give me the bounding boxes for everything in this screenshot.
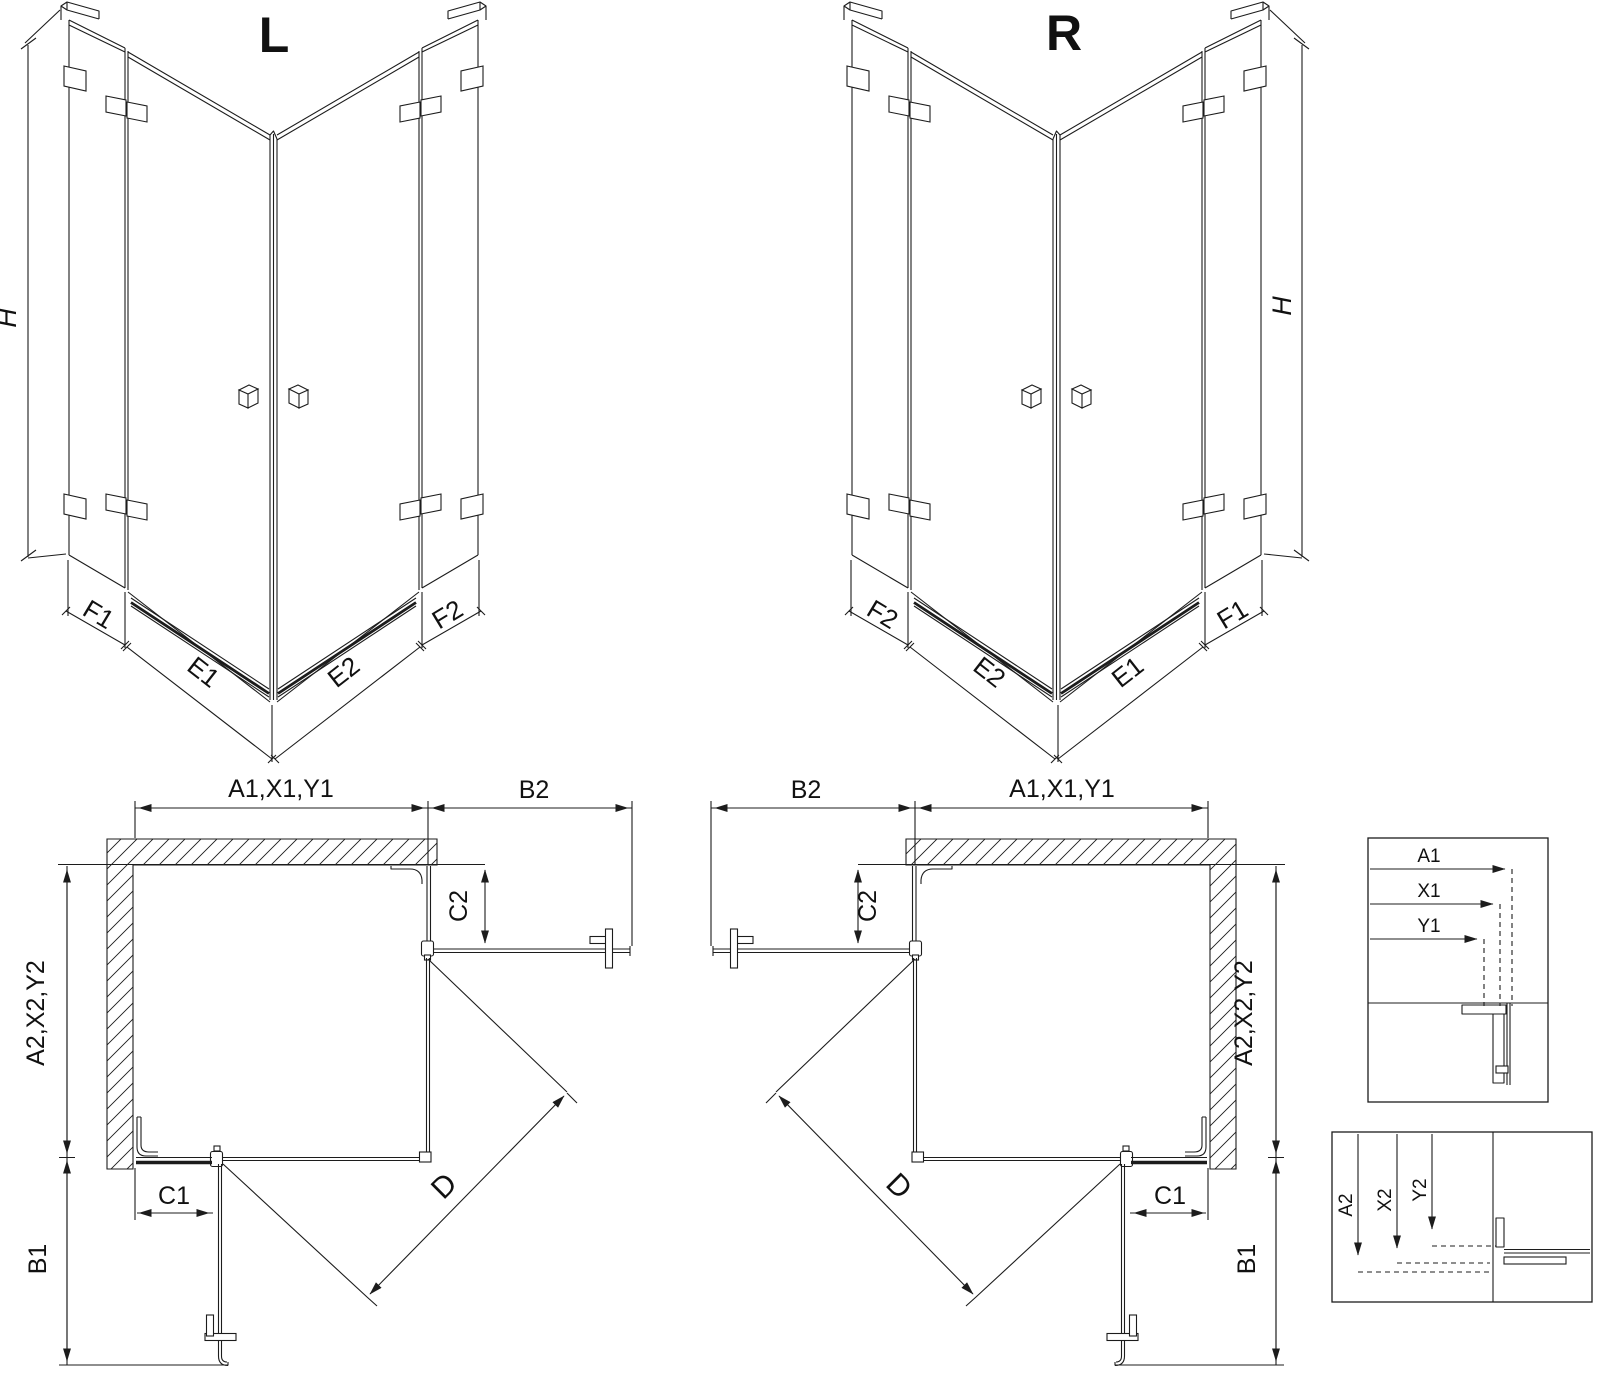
iso-left-f2-label: F2 — [427, 594, 468, 635]
plan-left-d-label: D — [425, 1167, 464, 1206]
plan-left-c2-label: C2 — [445, 890, 473, 922]
detail-diagram-bottom: A2 X2 Y2 — [1332, 1132, 1592, 1302]
plan-right-c1-label: C1 — [1154, 1182, 1186, 1210]
iso-right-title: R — [1046, 5, 1082, 61]
iso-left-e1-label: E1 — [182, 650, 226, 693]
iso-left-f1-label: F1 — [78, 594, 119, 635]
plan-left-depth-label: A2,X2,Y2 — [22, 960, 50, 1066]
plan-right-width-label: A1,X1,Y1 — [1009, 775, 1115, 803]
iso-right-f2-label: F2 — [862, 594, 903, 635]
plan-view-left: A1,X1,Y1 B2 C2 A2,X2,Y2 C1 B1 D — [22, 775, 632, 1366]
iso-view-right: R H F2 E2 E1 F1 — [844, 2, 1309, 763]
detail-bottom-y2-label: Y2 — [1410, 1178, 1431, 1201]
plan-right-b2-label: B2 — [791, 776, 822, 804]
iso-right-e2-label: E2 — [968, 650, 1012, 693]
plan-right-depth-label: A2,X2,Y2 — [1230, 960, 1258, 1066]
iso-right-f1-label: F1 — [1212, 594, 1253, 635]
plan-left-b1-label: B1 — [24, 1244, 52, 1275]
plan-right-b1-label: B1 — [1233, 1244, 1261, 1275]
plan-left-wall — [107, 839, 437, 1169]
detail-top-a1-label: A1 — [1417, 846, 1440, 867]
detail-top-x1-label: X1 — [1417, 881, 1440, 902]
technical-drawing-page: L H F1 E1 E2 F2 R H F2 E2 E1 F1 A1,X1,Y1… — [0, 0, 1600, 1373]
iso-right-e1-label: E1 — [1106, 650, 1150, 693]
detail-diagram-top: A1 X1 Y1 — [1368, 838, 1548, 1102]
plan-left-c1-label: C1 — [158, 1182, 190, 1210]
plan-right-d-label: D — [879, 1167, 918, 1206]
iso-left-height-label: H — [0, 308, 22, 328]
detail-bottom-x2-label: X2 — [1375, 1188, 1396, 1211]
plan-right-wall — [906, 839, 1236, 1169]
iso-left-e2-label: E2 — [322, 650, 366, 693]
detail-bottom-a2-label: A2 — [1336, 1193, 1357, 1216]
iso-left-title: L — [259, 7, 290, 63]
iso-view-left: L H F1 E1 E2 F2 — [0, 2, 486, 763]
plan-view-right: A1,X1,Y1 B2 C2 A2,X2,Y2 C1 B1 D — [711, 775, 1285, 1366]
plan-left-width-label: A1,X1,Y1 — [228, 775, 334, 803]
diagram-canvas: L H F1 E1 E2 F2 R H F2 E2 E1 F1 A1,X1,Y1… — [0, 0, 1600, 1373]
iso-right-height-label: H — [1267, 296, 1297, 316]
plan-right-c2-label: C2 — [854, 890, 882, 922]
plan-left-b2-label: B2 — [519, 776, 550, 804]
detail-top-y1-label: Y1 — [1417, 916, 1440, 937]
